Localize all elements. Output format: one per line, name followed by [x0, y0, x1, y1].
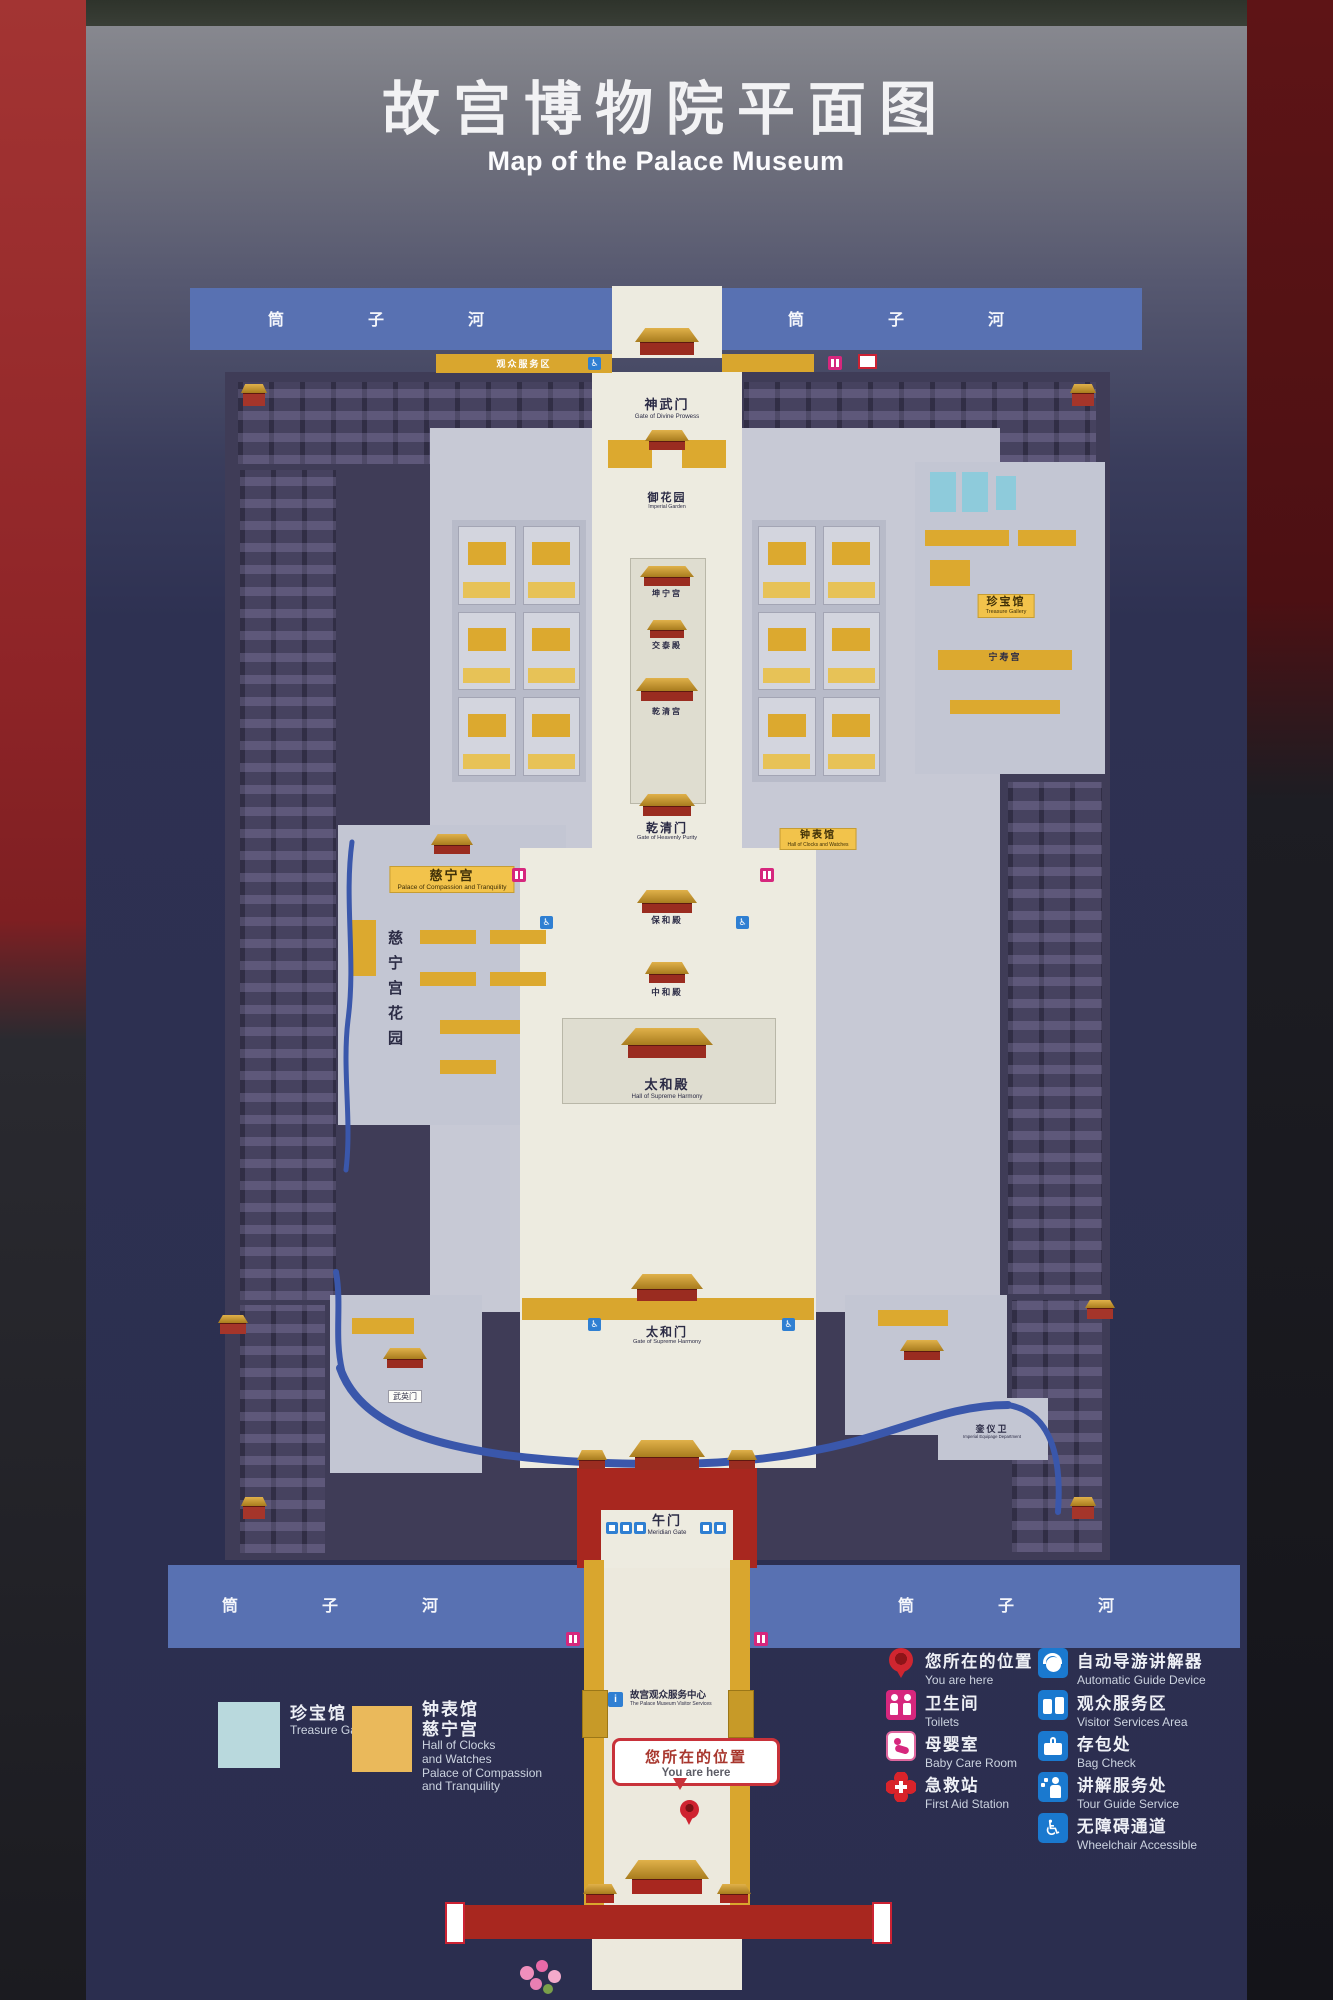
baby-care-icon — [886, 1731, 916, 1761]
taihemen-icon — [631, 1274, 703, 1301]
treasure-blue-building — [962, 472, 988, 512]
zhonghedian-icon — [645, 962, 689, 983]
luanyiwei-label: 銮仪卫Imperial Equipage Department — [961, 1424, 1022, 1439]
wenhua-hall-icon — [900, 1340, 944, 1360]
facility-icon — [606, 1522, 618, 1534]
service-area-label: 观众服务区 — [496, 357, 551, 370]
baohedian-label: 保和殿 — [651, 916, 683, 926]
corridor-gate-west — [582, 1690, 608, 1738]
you-are-here-pin-icon — [680, 1800, 699, 1819]
cininggong-label: 慈宁宫Palace of Compassion and Tranquility — [389, 866, 514, 893]
south-gate-side-east-icon — [717, 1884, 751, 1903]
legend-item-toilets: 卫生间Toilets — [886, 1690, 979, 1729]
moat-label-bottom-right: 筒子河 — [898, 1592, 1198, 1616]
cining-building — [420, 972, 476, 986]
legend-item-you-are-here: 您所在的位置You are here — [886, 1648, 1033, 1687]
you-are-here-callout: 您所在的位置 You are here — [612, 1738, 780, 1786]
wumen-gate-body — [577, 1468, 757, 1510]
facility-icon — [634, 1522, 646, 1534]
baohedian-icon — [637, 890, 697, 913]
west-six-palaces — [452, 520, 586, 782]
moat-label-bottom-left: 筒子河 — [222, 1592, 522, 1616]
qianqinggong-icon — [636, 678, 698, 701]
treasure-gold-building — [925, 530, 1009, 546]
cining-building — [490, 930, 546, 944]
cining-garden-label: 慈宁宫花园 — [384, 930, 405, 1055]
cining-building — [440, 1020, 520, 1034]
red-frame-post-left — [0, 0, 86, 2000]
legend-item-visitor-services: 观众服务区Visitor Services Area — [1038, 1690, 1188, 1729]
wuying-hall-icon — [383, 1348, 427, 1368]
legend-item-wheelchair: 无障碍通道Wheelchair Accessible — [1038, 1813, 1197, 1852]
taihemen-wing-wall — [522, 1298, 814, 1320]
zhonghedian-label: 中和殿 — [651, 988, 683, 998]
ticket-box — [858, 354, 877, 369]
toilets-icon — [886, 1690, 916, 1720]
zhongbiaoguan-label: 钟表馆Hall of Clocks and Watches — [780, 828, 857, 850]
jiaotaidian-icon — [647, 620, 687, 638]
wuying-building — [352, 1318, 414, 1334]
east-quarters — [1008, 782, 1102, 1294]
legend-swatch-treasure — [218, 1702, 280, 1768]
page-title-en: Map of the Palace Museum — [487, 146, 844, 177]
accessible-icon — [782, 1318, 795, 1331]
legend-item-baby-care: 母婴室Baby Care Room — [886, 1731, 1017, 1770]
jiaotaidian-label: 交泰殿 — [652, 642, 682, 651]
kunninggong-icon — [640, 566, 694, 586]
shenwumen-label: 神武门Gate of Divine Prowess — [633, 398, 701, 420]
wenhua-building — [878, 1310, 948, 1326]
corner-tower-se-icon — [1070, 1497, 1096, 1519]
cining-building — [440, 1060, 496, 1074]
shenwumen-gate-icon — [635, 328, 699, 355]
garden-hall-icon — [645, 430, 689, 450]
audio-guide-icon — [1038, 1648, 1068, 1678]
location-pin-icon — [886, 1648, 916, 1678]
wumen-wing-tower-east-icon — [727, 1450, 757, 1469]
bag-check-icon — [1038, 1731, 1068, 1761]
cining-building — [352, 920, 376, 976]
tour-guide-icon — [1038, 1772, 1068, 1802]
qianqinggong-label: 乾清宫 — [652, 708, 682, 717]
corridor-wall-west — [584, 1560, 604, 1932]
legend-item-tour-guide: 讲解服务处Tour Guide Service — [1038, 1772, 1179, 1811]
east-gate-icon — [1085, 1300, 1115, 1319]
treasure-blue-building — [996, 476, 1016, 510]
service-area-band-left: 观众服务区 — [436, 354, 612, 373]
flower-decal — [510, 1958, 570, 2000]
corner-tower-nw-icon — [241, 384, 267, 406]
first-aid-icon — [886, 1772, 916, 1802]
treasure-blue-building — [930, 472, 956, 512]
corner-tower-sw-icon — [241, 1497, 267, 1519]
info-icon — [608, 1692, 623, 1707]
wumen-tower-icon — [629, 1440, 705, 1470]
south-gate-tower-icon — [625, 1860, 709, 1894]
page-title-zh: 故宫博物院平面图 — [382, 62, 950, 146]
accessible-icon — [588, 1318, 601, 1331]
wheelchair-icon — [1038, 1813, 1068, 1843]
taihemen-label: 太和门Gate of Supreme Harmony — [631, 1326, 703, 1346]
cininggong-icon — [431, 834, 473, 854]
west-gate-icon — [218, 1315, 248, 1334]
toilet-icon — [760, 868, 774, 882]
treasure-gold-building — [930, 560, 970, 586]
legend-swatch-clocks — [352, 1706, 412, 1772]
toilet-icon — [754, 1632, 768, 1646]
taihedian-label: 太和殿Hall of Supreme Harmony — [630, 1078, 705, 1100]
wumen-wing-tower-west-icon — [577, 1450, 607, 1469]
accessible-icon — [588, 357, 601, 370]
accessible-icon — [736, 916, 749, 929]
east-six-palaces — [752, 520, 886, 782]
red-frame-post-right — [1247, 0, 1333, 2000]
wumen-label: 午门Meridian Gate — [647, 1514, 688, 1536]
accessible-icon — [540, 916, 553, 929]
visitor-center-label: 故宫观众服务中心 The Palace Museum Visitor Servi… — [630, 1690, 712, 1707]
south-wall-end-east — [872, 1902, 892, 1944]
south-gate-side-west-icon — [583, 1884, 617, 1903]
corridor-gate-east — [728, 1690, 754, 1738]
facility-icon — [714, 1522, 726, 1534]
outer-court-plaza — [520, 848, 816, 1468]
south-gate-wall — [455, 1905, 880, 1939]
legend-item-audio-guide: 自动导游讲解器Automatic Guide Device — [1038, 1648, 1206, 1687]
moat-label-top-right: 筒子河 — [788, 306, 1088, 330]
wuyingmen-label: 武英门 — [388, 1390, 422, 1403]
cining-building — [420, 930, 476, 944]
west-quarters — [240, 470, 336, 1300]
toilet-icon — [566, 1632, 580, 1646]
yuhuayuan-label: 御花园Imperial Garden — [647, 492, 686, 510]
toilet-icon — [828, 356, 842, 370]
taihedian-icon — [621, 1028, 713, 1058]
palace-museum-map-sign-photo: 故宫博物院平面图 Map of the Palace Museum 筒子河 筒子… — [0, 0, 1333, 2000]
ningshougong-label: 宁寿宫 — [988, 652, 1021, 662]
corner-tower-ne-icon — [1070, 384, 1096, 406]
treasure-gold-building — [1018, 530, 1076, 546]
service-area-band-right — [722, 354, 814, 373]
legend-swatch-clocks-label: 钟表馆 慈宁宫 Hall of Clocks and Watches Palac… — [422, 1700, 542, 1794]
facility-icon — [620, 1522, 632, 1534]
visitor-services-icon — [1038, 1690, 1068, 1720]
kunninggong-label: 坤宁宫 — [652, 590, 682, 599]
moat-label-top-left: 筒子河 — [268, 306, 568, 330]
qianqingmen-label: 乾清门Gate of Heavenly Purity — [635, 822, 698, 842]
toilet-icon — [512, 868, 526, 882]
cining-building — [490, 972, 546, 986]
qianqingmen-icon — [639, 794, 695, 816]
zhenbaoguan-label: 珍宝馆Treasure Gallery — [978, 594, 1035, 618]
south-wall-end-west — [445, 1902, 465, 1944]
legend-item-bag-check: 存包处Bag Check — [1038, 1731, 1136, 1770]
treasure-gold-building — [950, 700, 1060, 714]
legend-item-first-aid: 急救站First Aid Station — [886, 1772, 1009, 1811]
facility-icon — [700, 1522, 712, 1534]
